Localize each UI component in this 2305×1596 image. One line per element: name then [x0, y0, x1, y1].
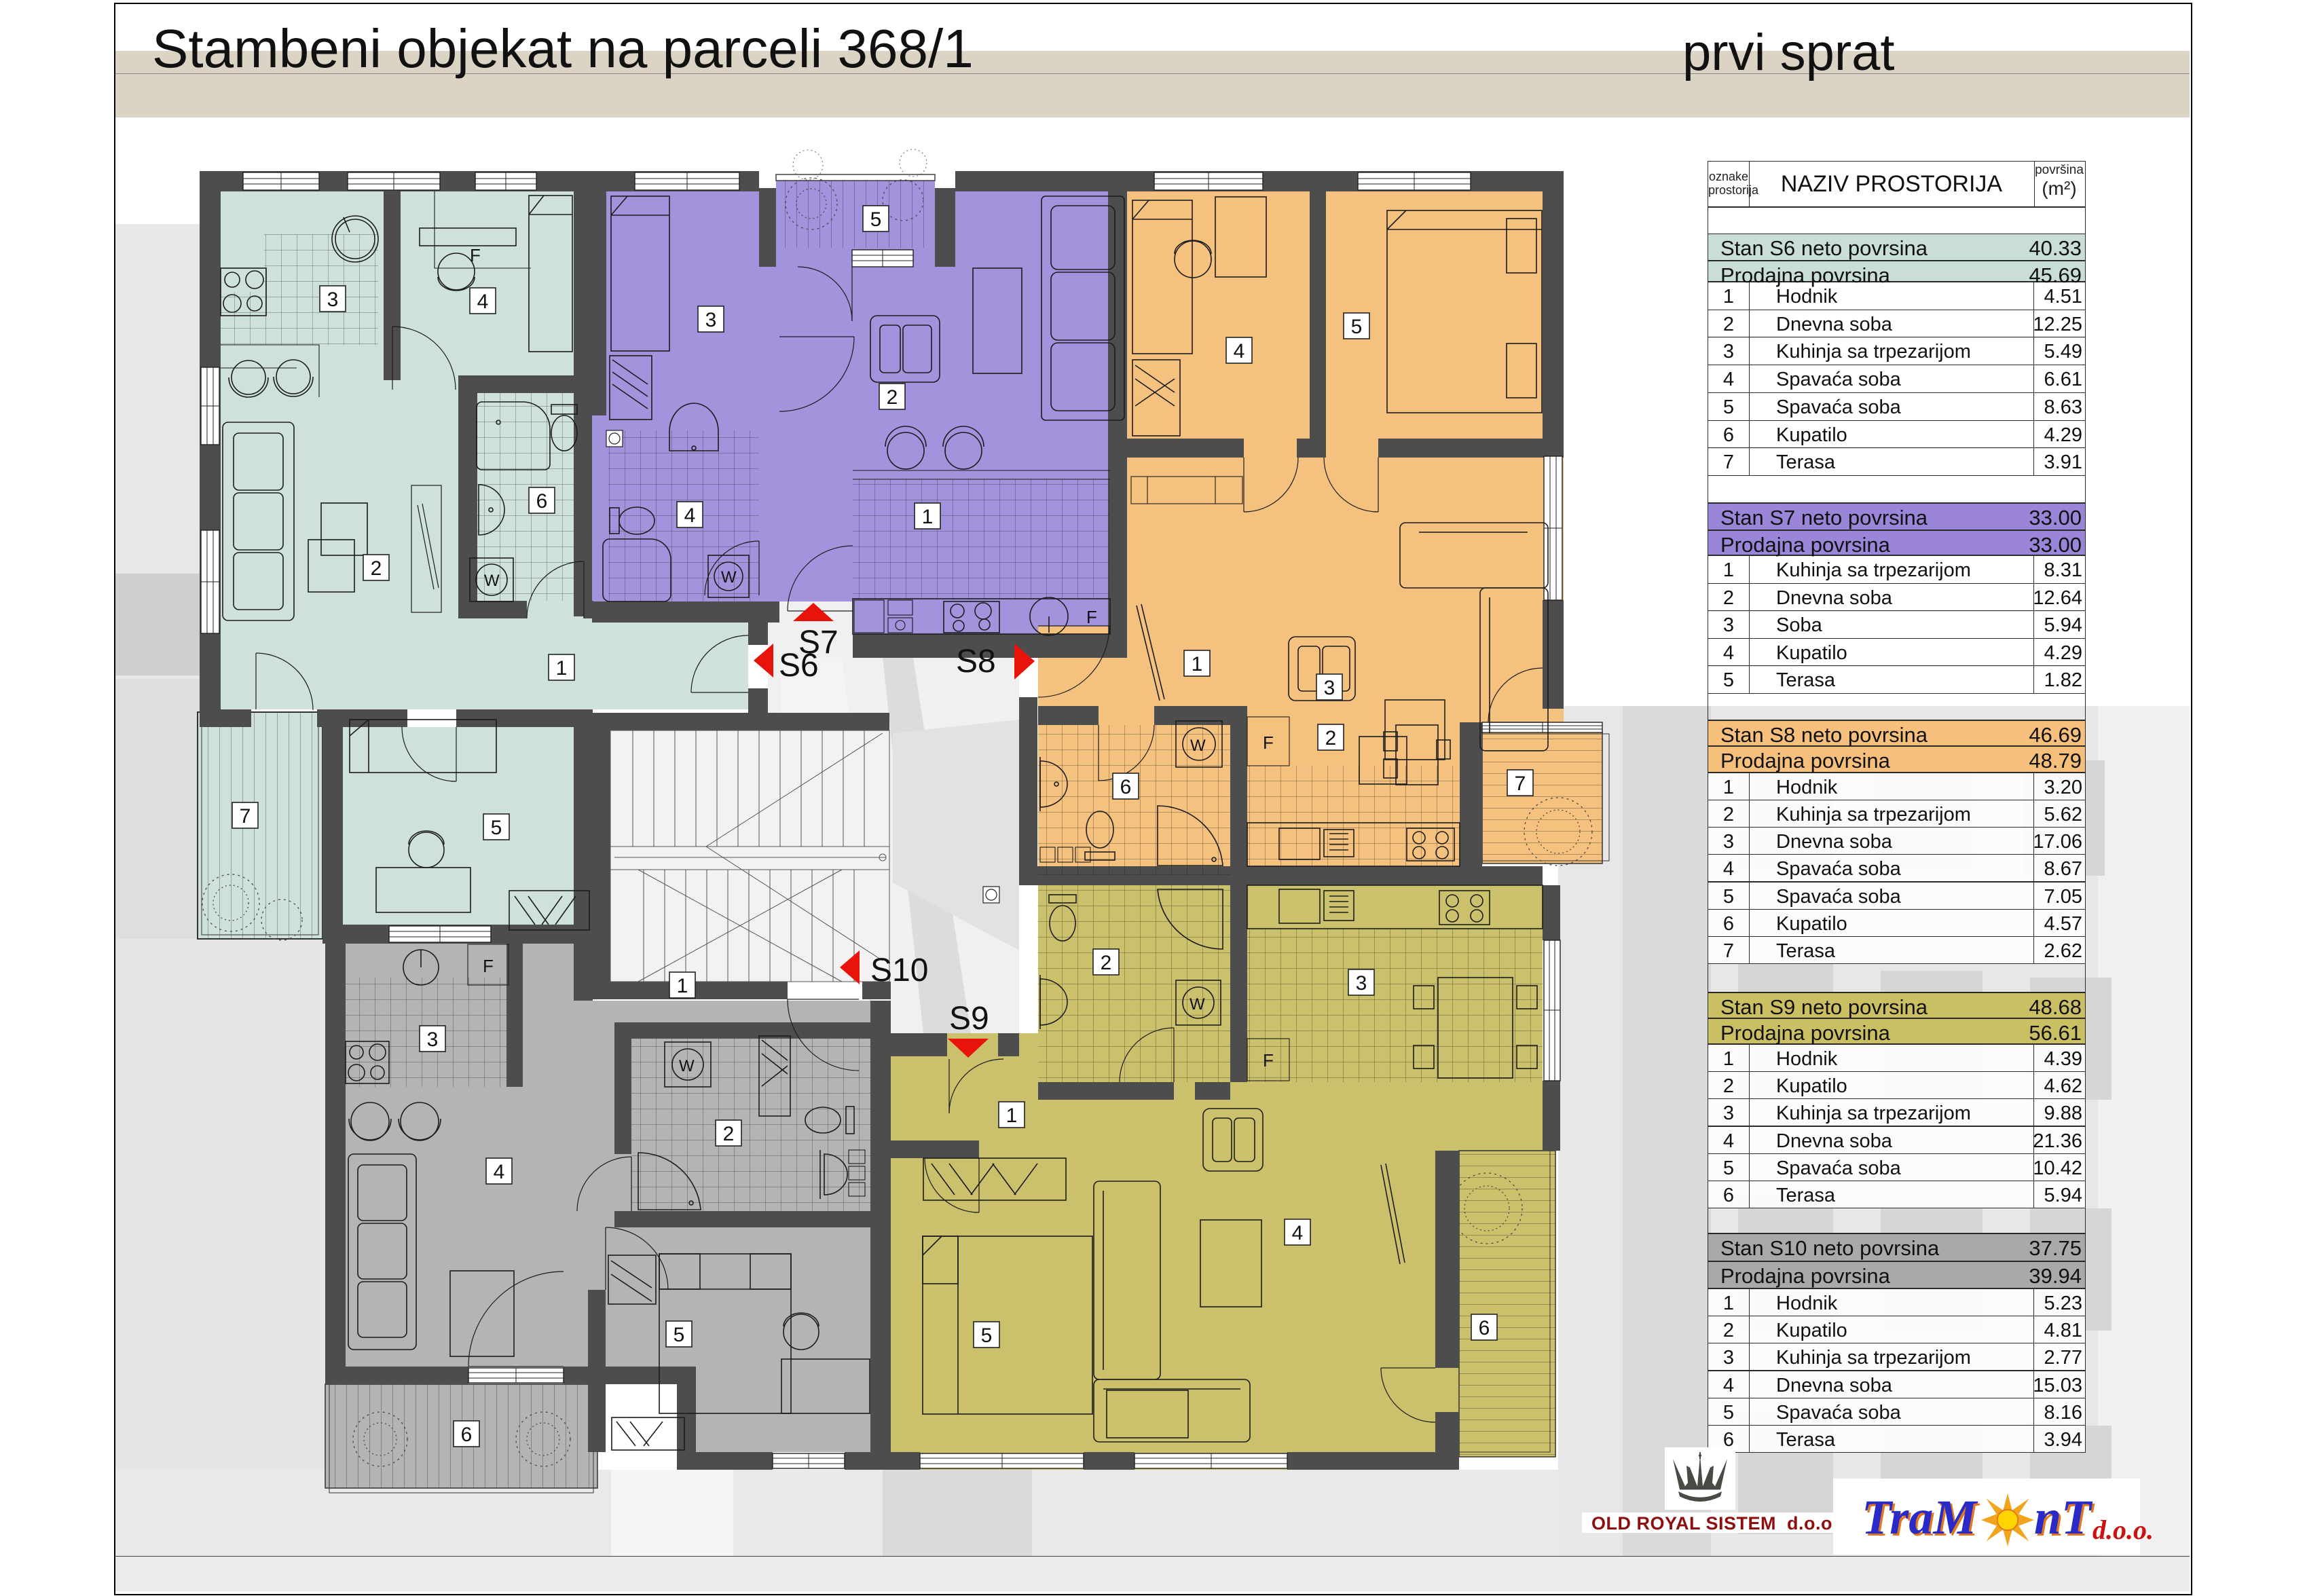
svg-text:4: 4 — [494, 1161, 505, 1183]
svg-text:F: F — [1086, 607, 1097, 627]
svg-text:6: 6 — [1120, 776, 1132, 798]
svg-text:2: 2 — [371, 557, 382, 580]
svg-text:W: W — [679, 1057, 695, 1075]
svg-text:W: W — [1190, 995, 1205, 1014]
svg-text:7: 7 — [1515, 773, 1526, 795]
svg-text:2: 2 — [723, 1123, 735, 1145]
svg-text:F: F — [1263, 1050, 1274, 1071]
svg-text:S10: S10 — [870, 952, 928, 988]
svg-text:1: 1 — [1006, 1105, 1018, 1127]
svg-text:6: 6 — [1479, 1317, 1490, 1339]
svg-text:S8: S8 — [956, 644, 996, 680]
svg-text:W: W — [721, 568, 737, 587]
svg-text:5: 5 — [674, 1324, 685, 1346]
svg-text:F: F — [1263, 732, 1274, 753]
svg-text:3: 3 — [1356, 972, 1367, 995]
svg-text:W: W — [484, 572, 500, 590]
svg-text:4: 4 — [1234, 340, 1245, 363]
svg-text:3: 3 — [705, 309, 717, 331]
svg-text:3: 3 — [1324, 677, 1335, 699]
svg-text:7: 7 — [240, 805, 251, 828]
svg-text:2: 2 — [1101, 952, 1112, 974]
svg-text:1: 1 — [677, 975, 688, 997]
svg-text:W: W — [1190, 737, 1206, 755]
svg-text:4: 4 — [1292, 1222, 1304, 1244]
svg-text:4: 4 — [477, 291, 489, 313]
svg-text:4: 4 — [684, 504, 696, 527]
svg-text:2: 2 — [1325, 727, 1337, 749]
svg-text:6: 6 — [461, 1424, 473, 1446]
svg-text:2: 2 — [887, 386, 898, 409]
svg-text:1: 1 — [1192, 653, 1203, 675]
svg-text:6: 6 — [536, 490, 548, 513]
svg-text:F: F — [483, 956, 494, 976]
svg-text:5: 5 — [981, 1324, 993, 1347]
svg-text:S6: S6 — [779, 648, 819, 684]
svg-text:S9: S9 — [949, 1001, 989, 1037]
svg-text:F: F — [470, 245, 481, 265]
svg-text:3: 3 — [427, 1028, 439, 1051]
svg-text:5: 5 — [1351, 316, 1363, 338]
svg-text:1: 1 — [556, 657, 568, 680]
svg-text:3: 3 — [327, 289, 339, 311]
svg-text:1: 1 — [922, 506, 934, 528]
svg-text:5: 5 — [870, 208, 882, 231]
svg-text:5: 5 — [491, 817, 502, 839]
